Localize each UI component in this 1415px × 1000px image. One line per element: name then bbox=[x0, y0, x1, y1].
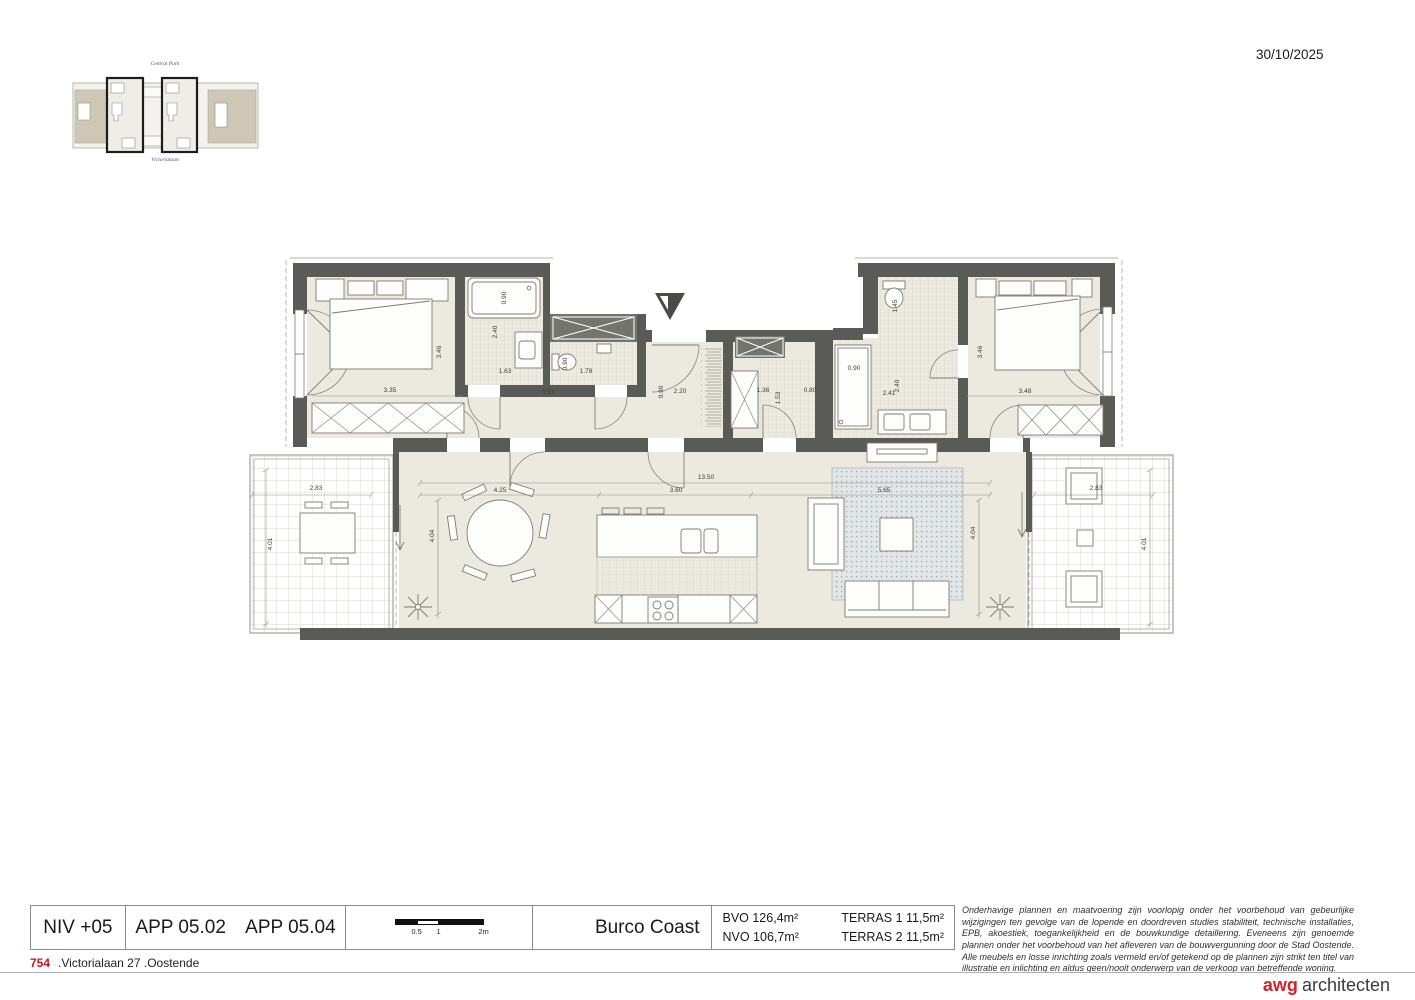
dimension-label: 5.65 bbox=[878, 487, 891, 494]
hand-basin bbox=[597, 344, 611, 353]
terras1-area: TERRAS 1 11,5m² bbox=[841, 909, 944, 928]
coffee-table bbox=[880, 518, 913, 551]
shower bbox=[835, 345, 871, 429]
sofa bbox=[845, 581, 949, 617]
dimension-label: 1.36 bbox=[757, 387, 770, 394]
kitchen bbox=[595, 508, 757, 623]
disclaimer-text: Onderhavige plannen en maatvoering zijn … bbox=[962, 905, 1354, 975]
project-address: 754.Victorialaan 27 .Oostende bbox=[30, 956, 199, 970]
shaft-1 bbox=[550, 314, 637, 342]
dimension-label: 1.45 bbox=[892, 299, 899, 312]
terras2-area: TERRAS 2 11,5m² bbox=[841, 928, 944, 947]
areas-cell: BVO 126,4m² NVO 106,7m² TERRAS 1 11,5m² … bbox=[712, 906, 954, 949]
dimension-label: 3.35 bbox=[384, 387, 397, 394]
scale-bar-cell: 0.5 1 2m bbox=[346, 906, 533, 949]
kitchen-counter bbox=[595, 595, 757, 623]
dimension-label: 0.90 bbox=[658, 385, 665, 398]
scale-ticks: 0.5 1 2m bbox=[395, 926, 484, 936]
dimension-label: 0.80 bbox=[804, 387, 817, 394]
project-name: Burco Coast bbox=[533, 906, 713, 949]
dimension-label: 2.20 bbox=[674, 388, 687, 395]
site-label-victorialaan: Victorialaan bbox=[151, 157, 179, 163]
dimension-label: 3.48 bbox=[1019, 388, 1032, 395]
dimension-label: 2.40 bbox=[492, 325, 499, 338]
dimension-label: 2.83 bbox=[310, 485, 323, 492]
dimension-label: 4.25 bbox=[494, 487, 507, 494]
kitchen-island bbox=[597, 515, 757, 557]
dimension-label: 3.51 bbox=[542, 389, 555, 396]
drawing-sheet: { "header": { "date": "30/10/2025" }, "s… bbox=[0, 0, 1415, 1000]
apartment-2-label: APP 05.04 bbox=[245, 917, 336, 939]
dimension-label: 0.90 bbox=[562, 357, 569, 370]
terrace-table bbox=[300, 513, 355, 553]
title-block: NIV +05 APP 05.02 APP 05.04 0.5 1 2m Bur… bbox=[30, 905, 955, 950]
tv-console bbox=[867, 443, 937, 462]
dining-table bbox=[467, 500, 533, 566]
footer-divider bbox=[0, 972, 1415, 973]
armchair bbox=[808, 498, 844, 570]
side-table bbox=[1077, 530, 1093, 546]
dimension-label: 2.40 bbox=[894, 379, 901, 392]
apartment-1-label: APP 05.02 bbox=[135, 917, 226, 939]
dimension-label: 4.01 bbox=[1141, 537, 1148, 550]
level-cell: NIV +05 bbox=[31, 906, 126, 949]
sheet-date: 30/10/2025 bbox=[1256, 47, 1324, 62]
floor-plan-drawing: Central Park Victorialaan bbox=[0, 0, 1415, 900]
vanity-2 bbox=[878, 410, 946, 434]
site-plan: Central Park Victorialaan bbox=[73, 61, 258, 163]
nvo-area: NVO 106,7m² bbox=[722, 928, 798, 947]
bed-2 bbox=[995, 296, 1080, 370]
dimension-label: 3.60 bbox=[670, 487, 683, 494]
shaft-2 bbox=[735, 336, 785, 358]
bed-1 bbox=[330, 299, 432, 369]
architect-logo: awgarchitecten bbox=[1263, 975, 1390, 996]
dimension-label: 4.04 bbox=[429, 529, 436, 542]
coat-rack-hatch bbox=[701, 347, 722, 427]
north-arrow-icon bbox=[655, 293, 685, 320]
dimension-label: 4.01 bbox=[267, 537, 274, 550]
apartment-plan: 3.353.460.902.401.630.901.783.510.902.20… bbox=[250, 258, 1173, 640]
dimension-label: 3.46 bbox=[977, 345, 984, 358]
dimension-label: 1.78 bbox=[580, 368, 593, 375]
dimension-label: 2.83 bbox=[1090, 485, 1103, 492]
apartment-cell: APP 05.02 APP 05.04 bbox=[126, 906, 347, 949]
wardrobe-1 bbox=[312, 403, 464, 433]
dimension-label: 13.50 bbox=[698, 474, 715, 481]
storage-cabinet bbox=[731, 371, 758, 428]
dimension-label: 1.53 bbox=[775, 391, 782, 404]
bvo-area: BVO 126,4m² bbox=[722, 909, 798, 928]
dimension-label: 0.90 bbox=[848, 365, 861, 372]
dimension-label: 0.90 bbox=[501, 291, 508, 304]
dimension-label: 4.04 bbox=[970, 526, 977, 539]
site-label-central-park: Central Park bbox=[151, 61, 180, 67]
scale-bar bbox=[395, 919, 484, 926]
dimension-label: 1.63 bbox=[499, 368, 512, 375]
wardrobe-2 bbox=[1018, 405, 1103, 435]
project-number: 754 bbox=[30, 956, 50, 970]
dimension-label: 3.46 bbox=[436, 345, 443, 358]
